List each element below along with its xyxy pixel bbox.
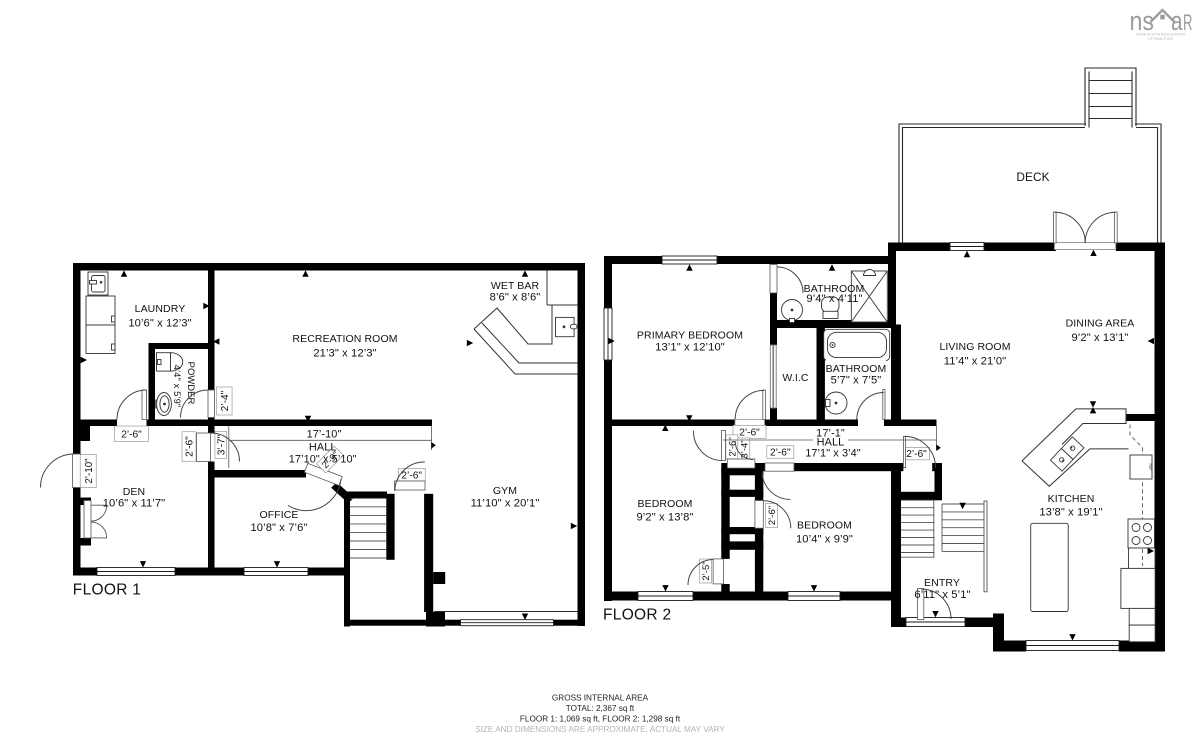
- svg-text:2’-6": 2’-6": [401, 470, 422, 481]
- svg-text:LIVING ROOM: LIVING ROOM: [939, 341, 1010, 353]
- svg-text:10’6" x 12’3": 10’6" x 12’3": [128, 318, 191, 330]
- svg-text:DINING AREA: DINING AREA: [1066, 318, 1135, 330]
- svg-text:10’4" x 9’9": 10’4" x 9’9": [796, 534, 853, 546]
- svg-text:R: R: [1183, 10, 1193, 35]
- svg-text:REF: REF: [1148, 464, 1152, 471]
- svg-text:FLOOR 2: FLOOR 2: [603, 607, 671, 624]
- svg-text:FLOOR 1: 1,069 sq ft, FLOOR 2:: FLOOR 1: 1,069 sq ft, FLOOR 2: 1,298 sq …: [520, 715, 681, 724]
- svg-text:4’4" x 5’9": 4’4" x 5’9": [172, 365, 183, 408]
- svg-text:3’-4": 3’-4": [739, 439, 750, 458]
- svg-text:13’8" x 19’1": 13’8" x 19’1": [1039, 507, 1102, 519]
- svg-text:RECREATION ROOM: RECREATION ROOM: [292, 333, 397, 345]
- svg-text:PRIMARY BEDROOM: PRIMARY BEDROOM: [637, 330, 743, 342]
- svg-text:LAUNDRY: LAUNDRY: [135, 303, 186, 315]
- svg-text:2’-10": 2’-10": [84, 458, 95, 484]
- svg-text:2’-6": 2’-6": [770, 448, 791, 459]
- svg-text:2’-6": 2’-6": [906, 449, 927, 460]
- svg-text:21’3" x 12’3": 21’3" x 12’3": [313, 348, 376, 360]
- svg-text:9’2" x 13’1": 9’2" x 13’1": [1071, 332, 1128, 344]
- svg-text:WET BAR: WET BAR: [491, 280, 540, 292]
- svg-text:OFFICE: OFFICE: [259, 509, 298, 521]
- svg-text:8’6" x 8’6": 8’6" x 8’6": [490, 292, 541, 304]
- svg-text:9’4" x 4’11": 9’4" x 4’11": [806, 293, 862, 305]
- svg-text:2’-6": 2’-6": [767, 506, 778, 525]
- svg-text:BEDROOM: BEDROOM: [797, 520, 852, 532]
- svg-text:OF REALTORS: OF REALTORS: [1148, 37, 1174, 41]
- svg-text:DEN: DEN: [123, 486, 145, 498]
- svg-text:10’6" x 11’7": 10’6" x 11’7": [103, 498, 166, 510]
- svg-text:FLOOR 1: FLOOR 1: [73, 582, 141, 599]
- svg-text:17’1" x 3’4": 17’1" x 3’4": [805, 448, 861, 460]
- svg-text:2’-5": 2’-5": [701, 561, 712, 580]
- svg-text:DECK: DECK: [1016, 170, 1049, 184]
- svg-text:6’11" x 5’1": 6’11" x 5’1": [914, 589, 970, 601]
- svg-text:5’7" x 7’5": 5’7" x 7’5": [831, 375, 882, 387]
- svg-text:2’-6": 2’-6": [739, 427, 760, 438]
- svg-text:KITCHEN: KITCHEN: [1048, 493, 1095, 505]
- svg-text:TOTAL: 2,367 sq ft: TOTAL: 2,367 sq ft: [566, 704, 635, 713]
- svg-text:17’-10": 17’-10": [307, 429, 342, 441]
- svg-text:2’-6": 2’-6": [185, 436, 196, 457]
- svg-text:GYM: GYM: [493, 485, 517, 497]
- svg-text:10’8" x 7’6": 10’8" x 7’6": [250, 522, 307, 534]
- svg-text:HALL: HALL: [309, 442, 337, 454]
- svg-text:GROSS INTERNAL AREA: GROSS INTERNAL AREA: [552, 694, 649, 703]
- svg-text:BATHROOM: BATHROOM: [826, 363, 887, 375]
- svg-text:17’10" x 5’10": 17’10" x 5’10": [289, 454, 357, 466]
- svg-text:13’1" x 12’10": 13’1" x 12’10": [655, 342, 725, 354]
- svg-text:2’-4": 2’-4": [220, 390, 231, 411]
- svg-text:W.I.C: W.I.C: [782, 372, 808, 384]
- svg-text:11’10" x 20’1": 11’10" x 20’1": [471, 498, 540, 510]
- svg-text:2’-6": 2’-6": [121, 429, 142, 440]
- svg-text:9’2" x 13’8": 9’2" x 13’8": [636, 512, 693, 524]
- svg-text:BEDROOM: BEDROOM: [638, 498, 693, 510]
- svg-text:11’4" x 21’0": 11’4" x 21’0": [944, 356, 1007, 368]
- svg-text:POWDER: POWDER: [186, 362, 197, 405]
- svg-text:ENTRY: ENTRY: [924, 577, 960, 589]
- svg-text:SIZE AND DIMENSIONS ARE APPROX: SIZE AND DIMENSIONS ARE APPROXIMATE, ACT…: [475, 725, 725, 734]
